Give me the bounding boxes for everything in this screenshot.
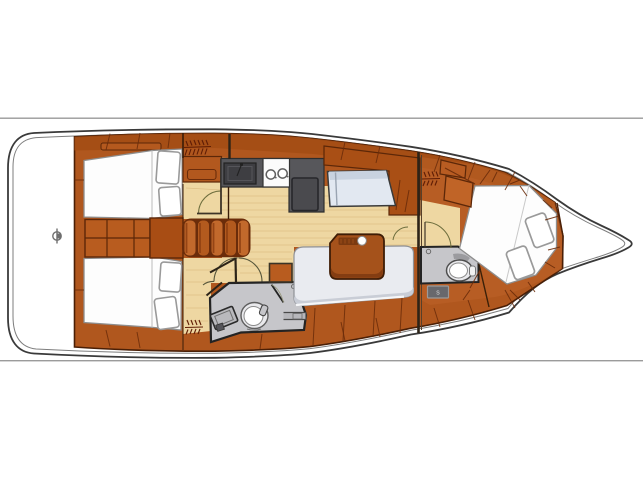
svg-text:s: s <box>436 290 440 297</box>
